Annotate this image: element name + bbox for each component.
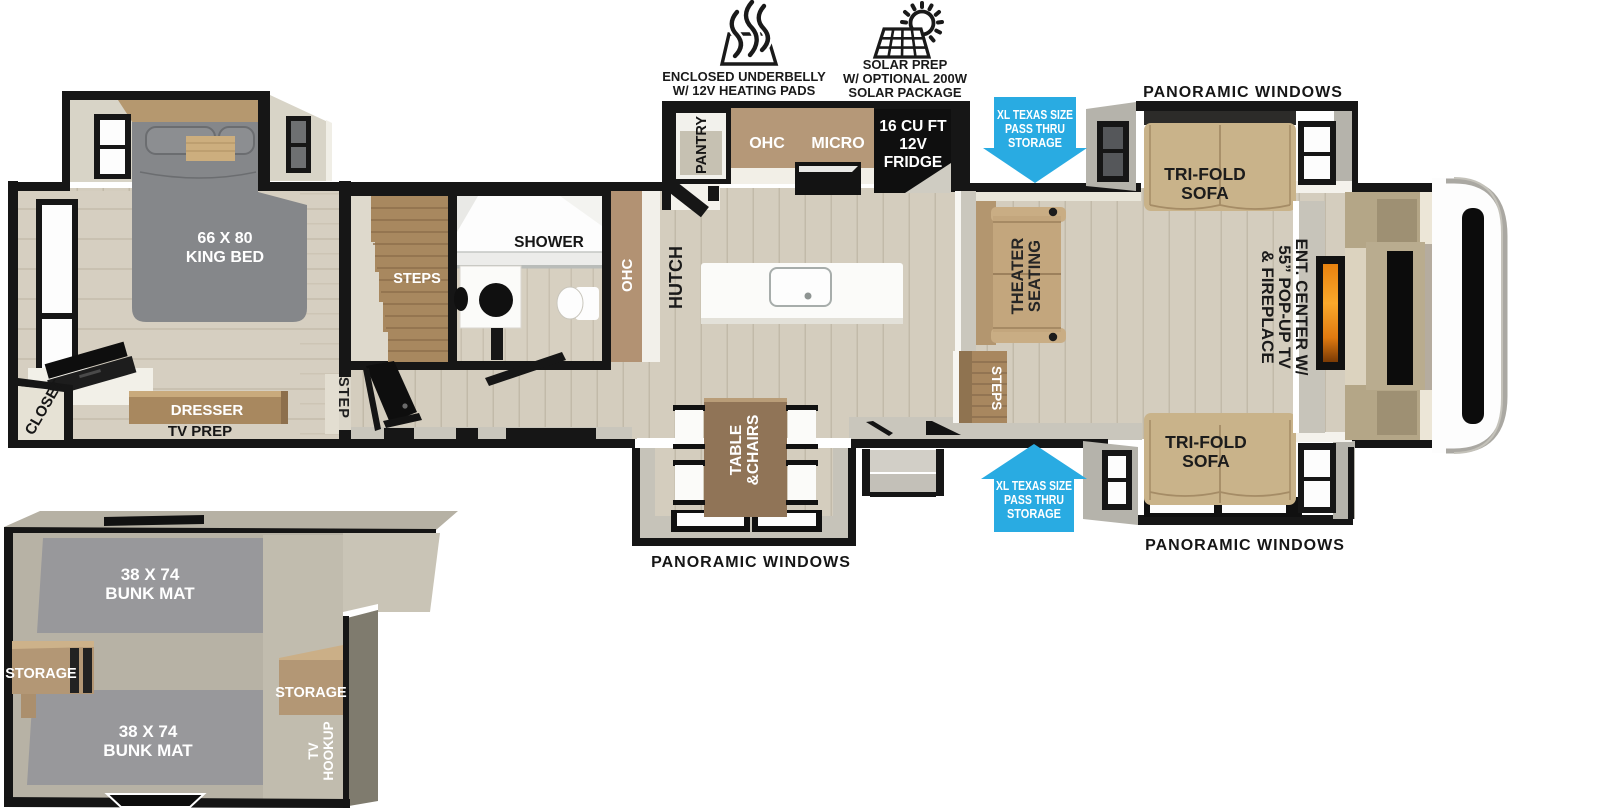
svg-text:XL TEXAS SIZE: XL TEXAS SIZE <box>997 108 1073 122</box>
svg-text:STORAGE: STORAGE <box>1008 136 1062 150</box>
svg-text:STORAGE: STORAGE <box>5 666 77 682</box>
svg-text:PANTRY: PANTRY <box>694 116 710 174</box>
svg-text:W/ 12V HEATING PADS: W/ 12V HEATING PADS <box>673 83 816 98</box>
svg-text:STORAGE: STORAGE <box>275 685 347 701</box>
svg-text:SOLAR PACKAGE: SOLAR PACKAGE <box>848 85 961 100</box>
svg-text:DRESSER: DRESSER <box>171 402 244 419</box>
svg-text:HUTCH: HUTCH <box>666 246 686 309</box>
svg-text:ENT. CENTER W/55” POP-UP TV& F: ENT. CENTER W/55” POP-UP TV& FIREPLACE <box>1258 239 1311 376</box>
svg-text:FRIDGE: FRIDGE <box>884 154 943 171</box>
svg-text:38 X 74: 38 X 74 <box>119 722 178 741</box>
svg-text:TV PREP: TV PREP <box>168 423 232 440</box>
svg-text:16 CU FT: 16 CU FT <box>879 118 947 135</box>
svg-text:OHC: OHC <box>749 135 785 152</box>
svg-text:38 X 74: 38 X 74 <box>121 565 180 584</box>
svg-text:STEPS: STEPS <box>393 271 441 287</box>
svg-text:SOFA: SOFA <box>1182 451 1230 471</box>
svg-text:TABLE&CHAIRS: TABLE&CHAIRS <box>728 415 762 486</box>
svg-text:ENCLOSED UNDERBELLY: ENCLOSED UNDERBELLY <box>662 69 826 84</box>
svg-text:STORAGE: STORAGE <box>1007 507 1061 521</box>
svg-text:BUNK MAT: BUNK MAT <box>103 741 193 760</box>
svg-text:PANORAMIC WINDOWS: PANORAMIC WINDOWS <box>651 554 851 571</box>
svg-text:66 X 80: 66 X 80 <box>197 230 252 247</box>
svg-text:THEATERSEATING: THEATERSEATING <box>1009 238 1044 315</box>
svg-text:PANORAMIC WINDOWS: PANORAMIC WINDOWS <box>1145 537 1345 554</box>
svg-text:STEPS: STEPS <box>989 366 1004 410</box>
svg-text:SOFA: SOFA <box>1181 183 1229 203</box>
svg-text:BUNK MAT: BUNK MAT <box>105 584 195 603</box>
svg-text:PASS THRU: PASS THRU <box>1005 122 1065 136</box>
svg-text:SOLAR PREP: SOLAR PREP <box>863 57 948 72</box>
svg-text:TRI-FOLD: TRI-FOLD <box>1165 432 1247 452</box>
svg-text:MICRO: MICRO <box>811 135 864 152</box>
svg-text:KING BED: KING BED <box>186 249 264 266</box>
svg-text:TRI-FOLD: TRI-FOLD <box>1164 164 1246 184</box>
svg-text:XL TEXAS SIZE: XL TEXAS SIZE <box>996 479 1072 493</box>
svg-text:STEP: STEP <box>335 377 351 419</box>
svg-text:OHC: OHC <box>619 259 636 293</box>
svg-text:W/ OPTIONAL 200W: W/ OPTIONAL 200W <box>843 71 968 86</box>
svg-text:12V: 12V <box>899 136 927 153</box>
svg-text:PASS THRU: PASS THRU <box>1004 493 1064 507</box>
svg-text:PANORAMIC WINDOWS: PANORAMIC WINDOWS <box>1143 84 1343 101</box>
svg-text:SHOWER: SHOWER <box>514 234 584 251</box>
